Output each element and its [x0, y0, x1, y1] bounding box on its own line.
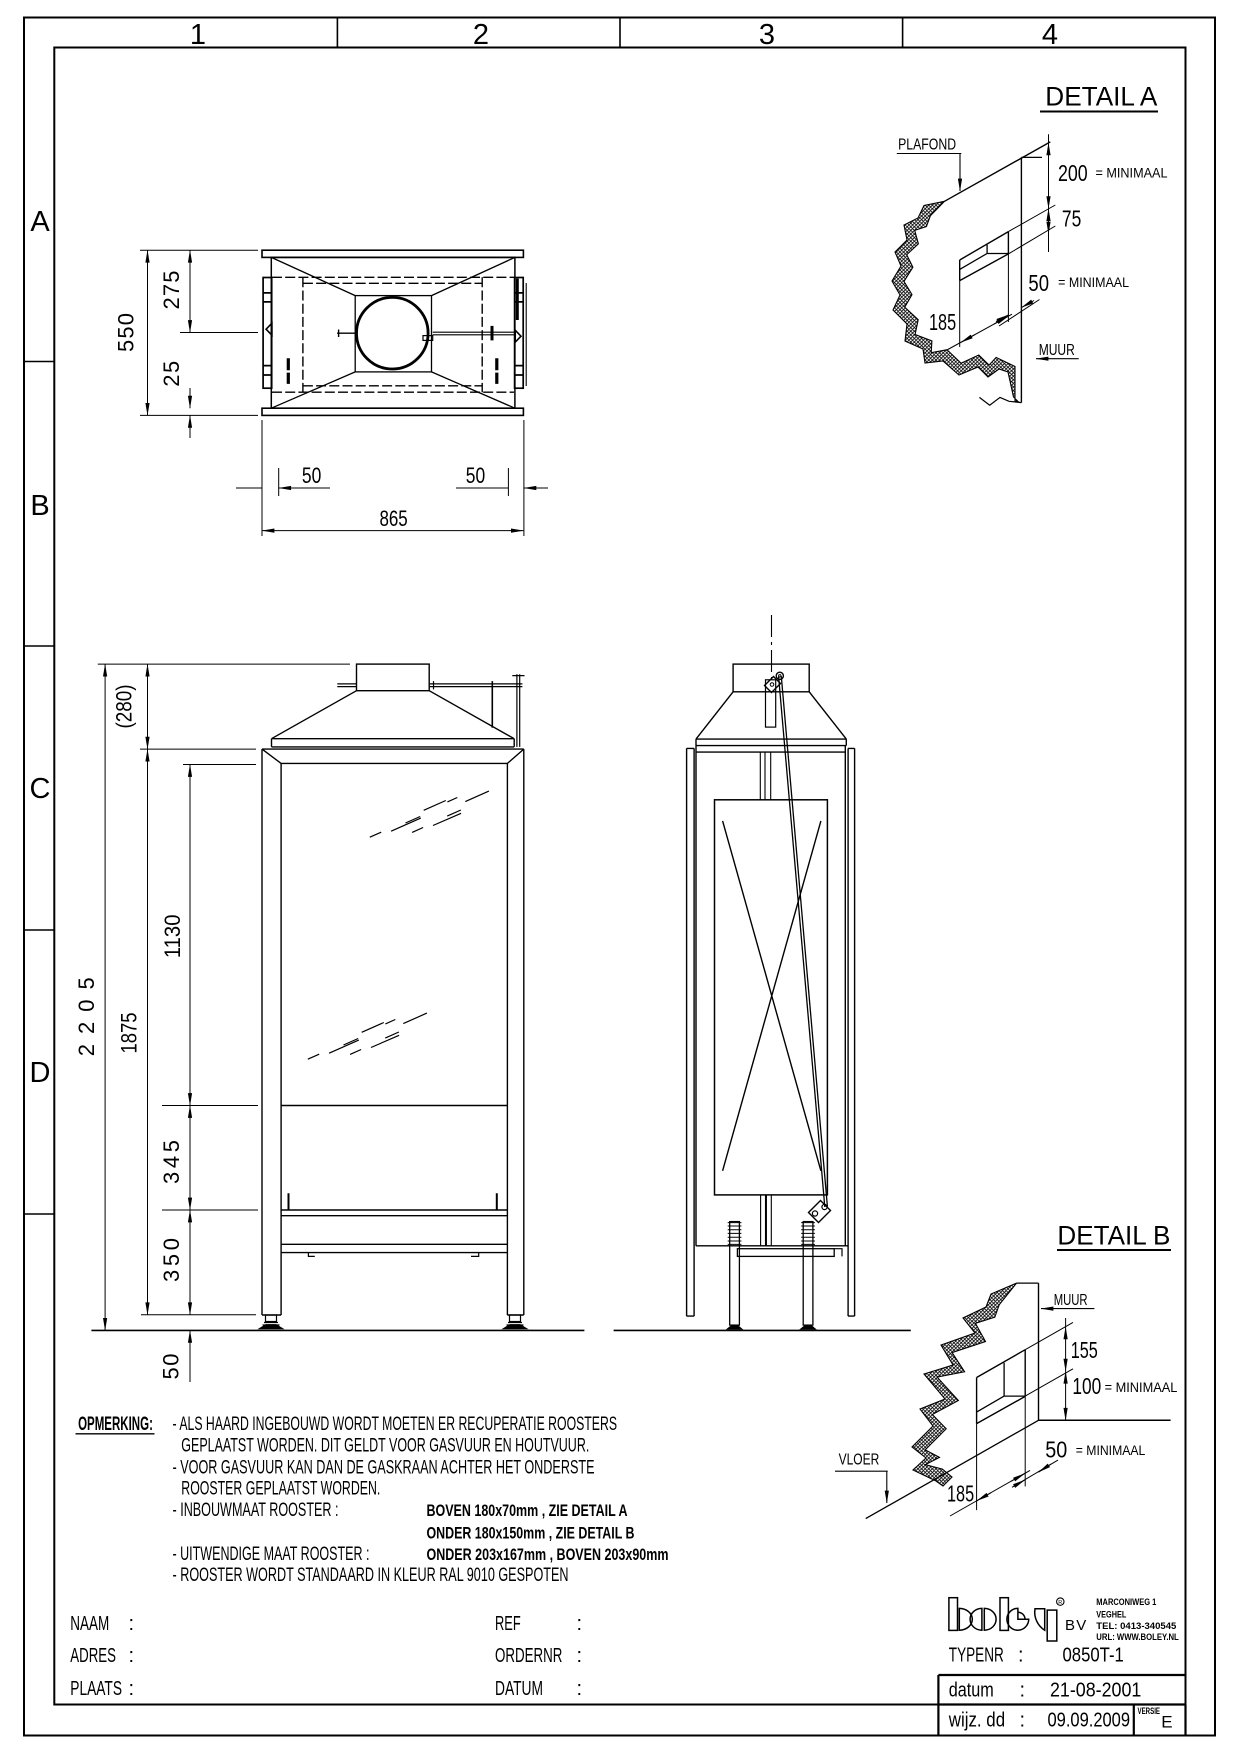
svg-text:185: 185 — [929, 309, 956, 335]
svg-text:0850T-1: 0850T-1 — [1063, 1644, 1124, 1666]
svg-text:BV: BV — [1065, 1617, 1086, 1634]
svg-text:R: R — [1058, 1600, 1062, 1606]
svg-text:BOVEN 180x70mm , ZIE DETAIL A: BOVEN 180x70mm , ZIE DETAIL A — [427, 1501, 628, 1520]
svg-text:REF: REF — [495, 1613, 521, 1635]
svg-text::: : — [577, 1613, 583, 1635]
svg-text:75: 75 — [1062, 206, 1081, 232]
svg-text:2205: 2205 — [74, 977, 99, 1056]
svg-text:= MINIMAAL: = MINIMAAL — [1076, 1442, 1146, 1458]
svg-text:- UITWENDIGE MAAT ROOSTER :: - UITWENDIGE MAAT ROOSTER : — [173, 1544, 370, 1565]
svg-text:OPMERKING:: OPMERKING: — [78, 1414, 153, 1435]
svg-text:ADRES: ADRES — [70, 1645, 116, 1667]
svg-text::: : — [129, 1613, 135, 1635]
svg-text:275: 275 — [159, 271, 184, 310]
svg-text:= MINIMAAL: = MINIMAAL — [1096, 165, 1168, 181]
svg-text:1: 1 — [190, 19, 206, 51]
svg-text:50: 50 — [1028, 270, 1049, 296]
svg-text:datum: datum — [949, 1679, 994, 1701]
svg-text:155: 155 — [1071, 1337, 1098, 1363]
svg-text:B: B — [30, 490, 49, 522]
svg-text:50: 50 — [466, 463, 485, 488]
svg-text:ONDER 203x167mm , BOVEN 203x90: ONDER 203x167mm , BOVEN 203x90mm — [427, 1545, 669, 1564]
svg-text:1875: 1875 — [117, 1013, 142, 1054]
svg-text:50: 50 — [302, 463, 321, 488]
svg-text:350: 350 — [159, 1238, 184, 1282]
svg-text::: : — [129, 1678, 135, 1700]
svg-text::: : — [577, 1678, 583, 1700]
svg-text:50: 50 — [1045, 1437, 1067, 1463]
svg-text::: : — [1018, 1644, 1024, 1666]
svg-text:A: A — [30, 206, 50, 238]
svg-text:ORDERNR: ORDERNR — [495, 1645, 562, 1667]
svg-text:PLAFOND: PLAFOND — [898, 137, 956, 154]
svg-text:550: 550 — [113, 313, 138, 352]
svg-text::: : — [1020, 1679, 1026, 1701]
svg-text:= MINIMAAL: = MINIMAAL — [1058, 274, 1129, 290]
svg-text::: : — [577, 1645, 583, 1667]
svg-text:345: 345 — [159, 1140, 184, 1184]
svg-text:VERSIE: VERSIE — [1138, 1706, 1161, 1716]
svg-text:21-08-2001: 21-08-2001 — [1050, 1679, 1141, 1701]
svg-text:- ALS HAARD INGEBOUWD WORDT MO: - ALS HAARD INGEBOUWD WORDT MOETEN ER RE… — [173, 1414, 618, 1435]
svg-text:ONDER 180x150mm , ZIE DETAIL B: ONDER 180x150mm , ZIE DETAIL B — [427, 1523, 635, 1542]
svg-text:C: C — [30, 773, 51, 805]
svg-text:4: 4 — [1042, 19, 1058, 51]
svg-text:09.09.2009: 09.09.2009 — [1048, 1709, 1131, 1731]
svg-text:MUUR: MUUR — [1054, 1292, 1088, 1309]
svg-text:wijz. dd: wijz. dd — [948, 1709, 1005, 1731]
svg-text:D: D — [30, 1057, 51, 1089]
svg-text:185: 185 — [947, 1481, 974, 1507]
svg-text:VLOER: VLOER — [839, 1452, 880, 1469]
svg-text:3: 3 — [759, 19, 775, 51]
svg-text:25: 25 — [159, 361, 184, 387]
svg-text:VEGHEL: VEGHEL — [1096, 1610, 1126, 1620]
svg-text:= MINIMAAL: = MINIMAAL — [1105, 1379, 1178, 1395]
svg-text:DETAIL B: DETAIL B — [1057, 1221, 1170, 1251]
svg-text:- ROOSTER WORDT STANDAARD IN K: - ROOSTER WORDT STANDAARD IN KLEUR RAL 9… — [173, 1565, 569, 1586]
svg-text:TEL: 0413-340545: TEL: 0413-340545 — [1096, 1621, 1176, 1631]
svg-text:DETAIL A: DETAIL A — [1045, 82, 1157, 112]
svg-text:MUUR: MUUR — [1039, 342, 1075, 359]
svg-text:E: E — [1161, 1713, 1172, 1732]
svg-text:50: 50 — [158, 1354, 183, 1380]
svg-text:(280): (280) — [111, 685, 136, 729]
svg-text::: : — [129, 1645, 135, 1667]
svg-text:- VOOR GASVUUR KAN DAN DE GASK: - VOOR GASVUUR KAN DAN DE GASKRAAN ACHTE… — [173, 1457, 595, 1478]
svg-text:DATUM: DATUM — [495, 1678, 543, 1700]
svg-text:- INBOUWMAAT ROOSTER :: - INBOUWMAAT ROOSTER : — [173, 1500, 339, 1521]
svg-text:URL: WWW.BOLEY.NL: URL: WWW.BOLEY.NL — [1096, 1632, 1179, 1642]
svg-text:GEPLAATST WORDEN. DIT GELDT VO: GEPLAATST WORDEN. DIT GELDT VOOR GASVUUR… — [181, 1436, 589, 1457]
svg-text:PLAATS: PLAATS — [70, 1678, 122, 1700]
svg-text::: : — [1020, 1709, 1026, 1731]
svg-text:100: 100 — [1072, 1373, 1101, 1399]
svg-text:MARCONIWEG 1: MARCONIWEG 1 — [1096, 1597, 1156, 1607]
svg-text:2: 2 — [473, 19, 489, 51]
svg-text:1130: 1130 — [160, 915, 185, 959]
svg-text:TYPENR: TYPENR — [949, 1644, 1004, 1666]
svg-text:NAAM: NAAM — [70, 1613, 109, 1635]
svg-text:ROOSTER GEPLAATST WORDEN.: ROOSTER GEPLAATST WORDEN. — [181, 1479, 380, 1500]
svg-text:865: 865 — [379, 506, 407, 531]
svg-text:200: 200 — [1058, 160, 1088, 186]
